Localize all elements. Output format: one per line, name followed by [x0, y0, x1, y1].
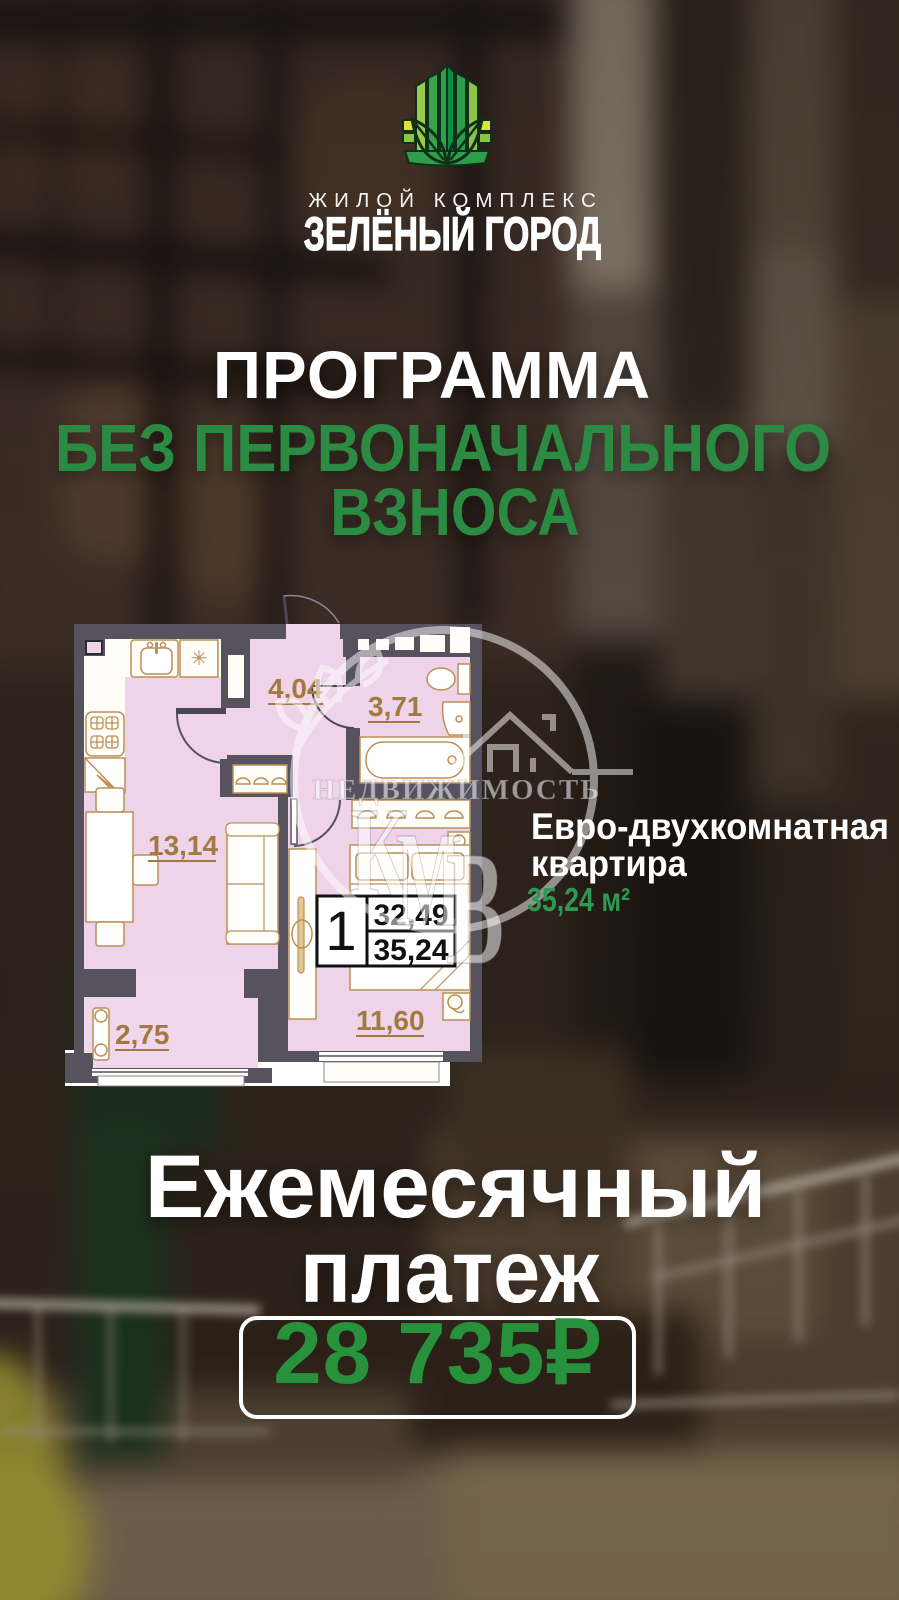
svg-text:В: В — [446, 818, 504, 999]
svg-text:2,75: 2,75 — [115, 1019, 170, 1050]
svg-text:✳: ✳ — [191, 648, 208, 670]
svg-text:13,14: 13,14 — [148, 830, 218, 861]
